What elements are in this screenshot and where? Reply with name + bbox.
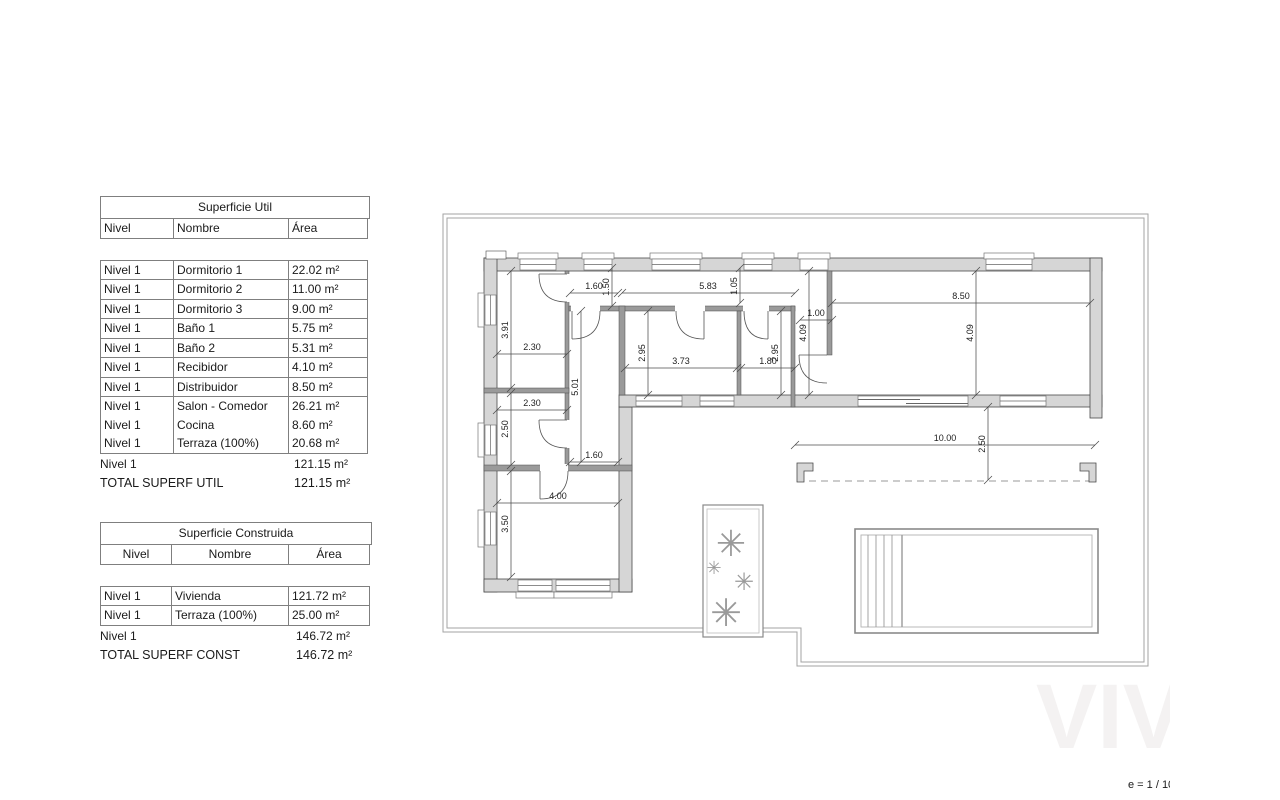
dim-label: 4.09 — [798, 324, 808, 342]
cell-area: 4.10 m² — [289, 358, 368, 378]
table-body: Nivel 1Vivienda121.72 m² Nivel 1Terraza … — [100, 586, 370, 626]
table-title: Superficie Util — [100, 196, 370, 219]
dim-label: 1.50 — [601, 278, 611, 296]
cell-nombre: Terraza (100%) — [172, 606, 289, 626]
dim-label: 1.60 — [585, 450, 603, 460]
header-nivel: Nivel — [101, 545, 172, 565]
cell-nombre: Salon - Comedor — [174, 397, 289, 416]
cell-area: 8.60 m² — [289, 416, 368, 435]
cell-area: 20.68 m² — [289, 434, 368, 453]
cell-nivel: Nivel 1 — [101, 434, 174, 453]
door-dormitorio3 — [744, 311, 768, 339]
dim-label: 4.09 — [965, 324, 975, 342]
spacer — [100, 239, 370, 260]
svg-text:✳: ✳ — [710, 593, 742, 635]
table-row: Nivel 1Terraza (100%)25.00 m² — [101, 606, 370, 626]
cell-area: 22.02 m² — [289, 260, 368, 280]
total-row: TOTAL SUPERF CONST 146.72 m² — [100, 648, 372, 664]
cell-area: 26.21 m² — [289, 397, 368, 416]
cell-nivel: Nivel 1 — [101, 606, 172, 626]
total-area: 121.15 m² — [294, 476, 350, 490]
dim-label: 3.91 — [500, 321, 510, 339]
total-area: 146.72 m² — [296, 648, 352, 662]
watermark: VIV — [1036, 666, 1170, 768]
cell-nombre: Cocina — [174, 416, 289, 435]
cell-area: 11.00 m² — [289, 280, 368, 300]
table-row: Nivel 1Distribuidor8.50 m² — [101, 377, 368, 397]
table-row: Nivel 1Vivienda121.72 m² — [101, 586, 370, 606]
svg-text:✳: ✳ — [706, 558, 721, 578]
cell-area: 121.72 m² — [289, 586, 370, 606]
subtotal-row: Nivel 1 121.15 m² — [100, 457, 370, 473]
dim-label: 2.95 — [770, 344, 780, 362]
cell-nivel: Nivel 1 — [101, 416, 174, 435]
superficie-util-table: Superficie Util Nivel Nombre Área Nivel … — [100, 196, 370, 492]
cell-area: 25.00 m² — [289, 606, 370, 626]
dim-label: 1.00 — [807, 308, 825, 318]
terrace — [797, 463, 1096, 482]
door-distribuidor — [572, 311, 600, 339]
cell-nivel: Nivel 1 — [101, 338, 174, 358]
scale-label: e = 1 / 100 — [1128, 779, 1170, 791]
header-nombre: Nombre — [174, 219, 289, 239]
dim-label: 2.95 — [637, 344, 647, 362]
table-row: Nivel 1Baño 25.31 m² — [101, 338, 368, 358]
table-row: Nivel 1Terraza (100%)20.68 m² — [101, 434, 368, 453]
planter: ✳ ✳ ✳ ✳ — [703, 505, 763, 637]
table-header: Nivel Nombre Área — [100, 544, 370, 565]
terrace-post — [797, 463, 813, 482]
cell-nivel: Nivel 1 — [101, 397, 174, 416]
subtotal-nivel: Nivel 1 — [100, 629, 137, 643]
cell-area: 9.00 m² — [289, 299, 368, 319]
dim-label: 2.30 — [523, 342, 541, 352]
dim-label: 2.30 — [523, 398, 541, 408]
cell-area: 5.75 m² — [289, 319, 368, 339]
dim-label: 2.50 — [977, 435, 987, 453]
dim-label: 2.50 — [500, 420, 510, 438]
cell-nivel: Nivel 1 — [101, 280, 174, 300]
superficie-construida-table: Superficie Construida Nivel Nombre Área … — [100, 522, 372, 664]
cell-nombre: Baño 2 — [174, 338, 289, 358]
header-row: Nivel Nombre Área — [101, 219, 368, 239]
total-label: TOTAL SUPERF UTIL — [100, 476, 223, 490]
subtotal-area: 121.15 m² — [294, 457, 348, 471]
table-row: Nivel 1Dormitorio 39.00 m² — [101, 299, 368, 319]
cell-nombre: Distribuidor — [174, 377, 289, 397]
subtotal-area: 146.72 m² — [296, 629, 350, 643]
table-title: Superficie Construida — [100, 522, 372, 545]
cell-nivel: Nivel 1 — [101, 299, 174, 319]
cell-nombre: Dormitorio 3 — [174, 299, 289, 319]
cell-area: 8.50 m² — [289, 377, 368, 397]
dim-label: 4.00 — [549, 491, 567, 501]
cell-nivel: Nivel 1 — [101, 358, 174, 378]
dim-label: 5.83 — [699, 281, 717, 291]
door-dormitorio1 — [539, 274, 567, 302]
cell-nombre: Baño 1 — [174, 319, 289, 339]
dim-label: 3.73 — [672, 356, 690, 366]
subtotal-row: Nivel 1 146.72 m² — [100, 629, 372, 645]
header-nivel: Nivel — [101, 219, 174, 239]
dim-label: 3.50 — [500, 515, 510, 533]
cell-nombre: Dormitorio 1 — [174, 260, 289, 280]
floor-plan: VIV ✳ ✳ ✳ ✳ — [430, 200, 1170, 800]
door-recibidor — [799, 355, 827, 383]
cell-nombre: Dormitorio 2 — [174, 280, 289, 300]
door-openings — [540, 274, 769, 472]
spacer — [100, 565, 372, 586]
subtotal-nivel: Nivel 1 — [100, 457, 137, 471]
door-dormitorio2 — [676, 311, 704, 339]
dim-label: 5.01 — [570, 378, 580, 396]
header-row: Nivel Nombre Área — [101, 545, 370, 565]
dim-label: 8.50 — [952, 291, 970, 301]
header-nombre: Nombre — [172, 545, 289, 565]
header-area: Área — [289, 545, 370, 565]
cell-nivel: Nivel 1 — [101, 377, 174, 397]
header-area: Área — [289, 219, 368, 239]
cell-nivel: Nivel 1 — [101, 319, 174, 339]
pool — [855, 529, 1098, 633]
cell-nombre: Vivienda — [172, 586, 289, 606]
svg-text:✳: ✳ — [734, 569, 754, 596]
door-bano — [539, 420, 567, 448]
cell-area: 5.31 m² — [289, 338, 368, 358]
table-header: Nivel Nombre Área — [100, 218, 368, 239]
dim-label: 1.05 — [729, 277, 739, 295]
cell-nivel: Nivel 1 — [101, 586, 172, 606]
table-body: Nivel 1Dormitorio 122.02 m² Nivel 1Dormi… — [100, 260, 368, 454]
table-row: Nivel 1Recibidor4.10 m² — [101, 358, 368, 378]
total-label: TOTAL SUPERF CONST — [100, 648, 240, 662]
table-row: Nivel 1Baño 15.75 m² — [101, 319, 368, 339]
table-row: Nivel 1Cocina8.60 m² — [101, 416, 368, 435]
table-row: Nivel 1Salon - Comedor26.21 m² — [101, 397, 368, 416]
interior-walls — [484, 271, 832, 471]
table-row: Nivel 1Dormitorio 122.02 m² — [101, 260, 368, 280]
table-row: Nivel 1Dormitorio 211.00 m² — [101, 280, 368, 300]
dim-label: 10.00 — [934, 433, 957, 443]
total-row: TOTAL SUPERF UTIL 121.15 m² — [100, 476, 370, 492]
cell-nombre: Terraza (100%) — [174, 434, 289, 453]
cell-nombre: Recibidor — [174, 358, 289, 378]
terrace-post — [1080, 463, 1096, 482]
cell-nivel: Nivel 1 — [101, 260, 174, 280]
